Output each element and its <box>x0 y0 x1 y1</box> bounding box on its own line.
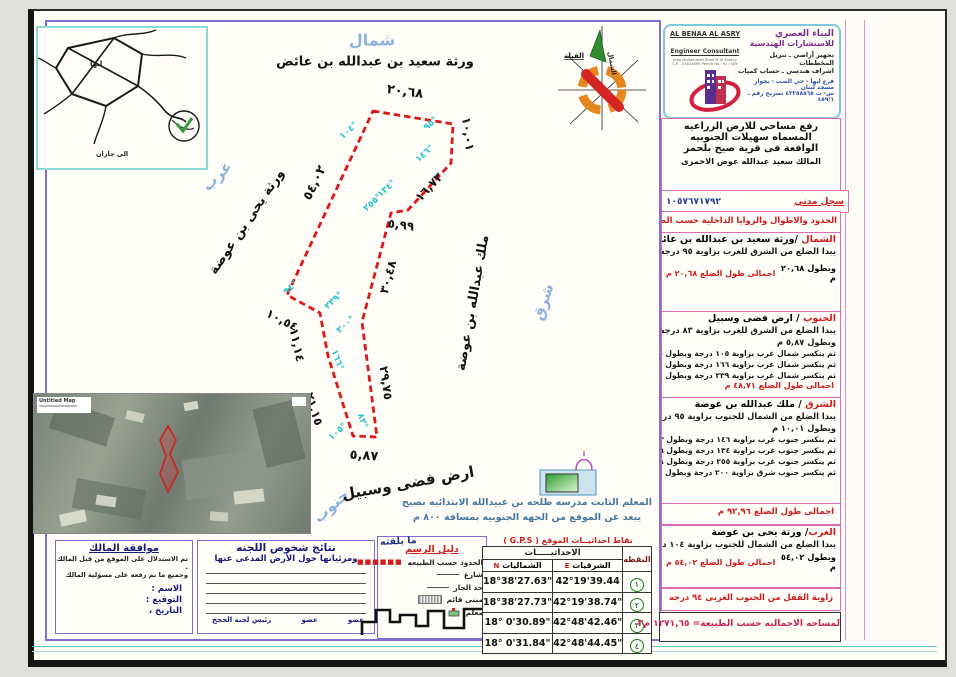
building <box>183 401 198 411</box>
gps-col-north-letter: N <box>493 562 499 570</box>
company-service-1: تجهير أراضي ـ تنزيل المخططات <box>738 51 834 67</box>
compass-qibla: الشمال القبلة <box>556 26 648 132</box>
south-line1: يبدا الضلع من الشرق للغرب بزاوية ٨٣ درجه <box>662 324 840 336</box>
point-badge: ١ <box>630 578 644 592</box>
gps-row-3: 18° 0'30.89" 42°48'42.46" ٣ <box>483 613 652 634</box>
east-line6: ثم ينكسر جنوب شرق بزاوية ٢٠٠ درجة وبطول … <box>662 467 840 478</box>
legend-sample-neighbor <box>427 587 449 588</box>
owner-box-line1: تم الاستدلال على الموقع من قبل المالك . <box>56 554 192 571</box>
south-label: الجنوب <box>803 313 836 324</box>
legend-sample-boundary: ■■■■■■ <box>357 558 403 566</box>
civil-registry-number: ١٠٥٧٦٧١٧٩٢ <box>666 197 721 207</box>
survey-title-box: رفع مساحي للارض الزراعيه المسماه سهيلات … <box>661 118 841 192</box>
sketch-city-label: ابها <box>90 60 102 68</box>
civil-registry-row: سجل مدني ١٠٥٧٦٧١٧٩٢ <box>661 190 849 213</box>
satellite-image: Untitled Map <box>33 393 311 534</box>
north-neighbor-name: /ورثة سعيد بن عبدالله بن عائض <box>661 234 798 245</box>
building <box>210 511 229 521</box>
civil-registry-label: سجل مدني <box>794 197 844 207</box>
company-logo <box>687 62 743 116</box>
bounds-header-text: الحدود والاطوال والزوايا الداخلية حسب ال… <box>662 212 840 225</box>
satellite-map-label: Untitled Map <box>39 398 89 404</box>
north-arrow <box>590 30 606 62</box>
signature-line <box>206 604 366 614</box>
section-east: الشرق / ملك عبدالله بن عوضة يبدا الضلع م… <box>661 397 841 505</box>
building <box>233 488 264 504</box>
gps-col-east: الشرقيات E <box>553 560 623 572</box>
committee-sig2: عضو <box>302 616 318 624</box>
point-badge: ٤ <box>630 639 644 653</box>
right-pink-line-1 <box>845 20 846 640</box>
west-line1: يبدا الضلع من الشمال للجنوب بزاوية ١٠٤ د… <box>662 538 840 550</box>
committee-box: نتائج شخوص اللجنه ومرئياتها حول الأرض ال… <box>197 540 375 634</box>
owner-name-label: الاسم : <box>56 579 192 594</box>
committee-sig3: رئيس لجنة الحجج <box>212 616 271 624</box>
satellite-parcel-outline <box>152 422 192 506</box>
owner-box-line2: وجميع ما تم رفعه على مسؤلية المالك <box>56 571 192 579</box>
satellite-corner-chip <box>292 397 306 406</box>
east-line1: يبدا الضلع من الشمال للجنوب بزاوية ٩٥ در… <box>662 410 840 422</box>
signature-line <box>206 584 366 594</box>
north-line2: وبطول ٢٠,٦٨ م <box>775 263 836 283</box>
south-line4: ثم ينكسر شمال غرب بزاوية ١٦٦ درجة وبطول … <box>662 359 840 370</box>
gps-col-point: النقطه <box>623 547 651 572</box>
lock-angle-text: زاوية القفل من الجنوب الغربى ٩٤ درجه <box>662 589 840 602</box>
east-line5: ثم ينكسر جنوب غرب بزاوية ٢٥٥ درجة وبطول … <box>662 456 840 467</box>
south-neighbor-name: / ارض فضى وسبيل <box>708 313 800 324</box>
legend-item-neighbor: حد الجار <box>454 583 483 592</box>
east-neighbor-name: / ملك عبدالله بن عوضة <box>695 399 802 410</box>
sketch-to-jazan-label: الى جازان <box>96 150 128 158</box>
committee-subtitle: ومرئياتها حول الأرض المدعى عنها <box>198 554 374 564</box>
signature-line <box>206 574 366 584</box>
landmark-caption-2: يبعد عن الموقع من الجهه الجنوبيه بمسافة … <box>398 512 656 523</box>
lock-angle-row: زاوية القفل من الجنوب الغربى ٩٤ درجه <box>661 588 841 611</box>
road-sketch-drawing <box>38 28 202 164</box>
qibla-label: القبلة <box>564 52 584 60</box>
length-bottom: ٥,٨٧ <box>349 448 379 465</box>
bounds-header-row: الحدود والاطوال والزوايا الداخلية حسب ال… <box>661 211 841 234</box>
survey-title-line1: رفع مساحي للارض الزراعيه المسماه سهيلات … <box>662 119 840 143</box>
west-line2: وبطول ٥٤,٠٢ م <box>775 552 836 572</box>
owner-date-label: التاريخ ، <box>56 605 192 616</box>
satellite-map-sub <box>39 405 77 407</box>
signature-line <box>206 564 366 574</box>
company-header-box: البناء العصري للاستشارات الهندسية تجهير … <box>663 24 841 119</box>
gps-col-north: الشماليات N <box>483 560 553 572</box>
gps-col-east-letter: E <box>565 562 570 570</box>
east-total-row: اجمالى طول الضلع ٩٢,٩٦ م <box>661 503 841 525</box>
owner-approval-box: موافقة المالك تم الاستدلال على الموقع من… <box>55 540 193 634</box>
company-branch: فرع ابها - حي الضب - بجوار مسجد لبنان <box>738 79 834 91</box>
location-sketch-box: ابها الى جازان <box>36 26 208 170</box>
legend-item-street: شارع <box>464 570 483 579</box>
gps-table: الاحداثيـــــات النقطه الشماليات N الشرق… <box>482 546 652 654</box>
legend-item-boundary: الحدود حسب الطبيعه <box>408 558 483 567</box>
owner-box-title: موافقة المالك <box>56 543 192 554</box>
company-name-ar: البناء العصري <box>738 29 834 39</box>
satellite-map-chip: Untitled Map <box>37 397 91 413</box>
west-total: اجمالى طول الضلع ٥٤,٠٢ م <box>666 558 775 567</box>
south-line5: ثم ينكسر شمال غرب بزاوية ٢٣٩ درجة وبطول … <box>662 370 840 381</box>
east-line3: ثم ينكسر جنوب غرب بزاوية ١٤٦ درجة وبطول … <box>662 434 840 445</box>
east-total: اجمالى طول الضلع ٩٢,٩٦ م <box>662 504 840 517</box>
total-area-row: لمساحه الاجماليه حسب الطبيعة= ١٢٧١,٦٥ م٢ <box>659 612 841 642</box>
gps-row-2: 18°38'27.73" 42°19'38.74" ٢ <box>483 592 652 613</box>
legend-overlay-text: ما يلقته <box>380 535 417 548</box>
company-sub-en: Engineer Consultant <box>671 48 740 56</box>
owner-sign-label: التوقيع : <box>56 594 192 605</box>
right-pink-line-2 <box>864 20 865 640</box>
legend-sample-street <box>437 574 459 575</box>
gps-title: نقاط احداثيــات الموقع ( G.P.S ) <box>482 536 654 545</box>
north-line1: يبدا الضلع من الشرق للغرب بزاوية ٩٥ درجه <box>662 245 840 257</box>
landmark-icon <box>536 448 600 498</box>
company-name-en: AL BENAA AL ASRY <box>670 30 740 38</box>
building <box>59 509 87 526</box>
gps-row-1: 18°38'27.63" 42°19'39.44 ١ <box>483 572 652 593</box>
building <box>125 410 145 423</box>
section-north: الشمال /ورثة سعيد بن عبدالله بن عائض يبد… <box>661 232 841 313</box>
stepped-outline-drawing <box>360 602 490 638</box>
gps-block: نقاط احداثيــات الموقع ( G.P.S ) الاحداث… <box>482 536 654 654</box>
east-line4: ثم ينكسر جنوب غرب بزاوية ١٣٤ درجة وبطول … <box>662 445 840 456</box>
south-total: اجمالى طول الضلع ٤٨,٧١ م <box>662 381 840 390</box>
east-line2: وبطول ١٠,٠١ م <box>662 422 840 434</box>
company-name-ar2: للاستشارات الهندسية <box>738 39 834 48</box>
gps-col-coords: الاحداثيـــــات <box>483 547 623 560</box>
west-neighbor-name: / ورثة يحى بن عوضة <box>711 527 808 538</box>
survey-title-line2: الواقعة فى قرية صيح بلحمر <box>662 143 840 154</box>
gps-row-4: 18° 0'31.84" 42°48'44.45" ٤ <box>483 633 652 654</box>
committee-title: نتائج شخوص اللجنه <box>198 542 374 554</box>
north-total: اجمالى طول الضلع ٢٠,٦٨ م <box>666 269 775 278</box>
point-badge: ٢ <box>630 598 644 612</box>
north-label: الشمال <box>801 234 836 245</box>
survey-owner-line: المالك سعيد عبدالله عوض الاحمرى <box>662 154 840 166</box>
total-area-text: لمساحه الاجماليه حسب الطبيعة= ١٢٧١,٦٥ م٢ <box>660 613 840 629</box>
west-label: الغرب <box>808 527 836 538</box>
section-south: الجنوب / ارض فضى وسبيل يبدا الضلع من الش… <box>661 311 841 399</box>
survey-document-page: ابها الى جازان الشمال القبلة شمال غرب شر… <box>0 0 956 677</box>
south-line3: ثم ينكسر شمال غرب بزاوية ١٠٥ درجة وبطول … <box>662 348 840 359</box>
east-label: الشرق <box>805 399 836 410</box>
landmark-caption-1: المعلم الثابت مدرسه طلحه بن عبيدالله الا… <box>398 497 656 508</box>
north-neighbor-label: ورثة سعيد بن عبدالله بن عائض <box>276 55 474 70</box>
company-phone: س- ت ٤٣٢٥٨٥٦٥ تصريح رقم ـ ٤٥٩/١ <box>738 91 834 103</box>
section-west: الغرب/ ورثة يحى بن عوضة يبدا الضلع من ال… <box>661 525 841 588</box>
south-line2: وبطول ٥,٨٧ م <box>662 336 840 348</box>
north-word: شمال <box>349 31 395 50</box>
signature-line <box>206 594 366 604</box>
company-service-2: اشراف هندسي ـ حساب كميات <box>738 67 834 75</box>
